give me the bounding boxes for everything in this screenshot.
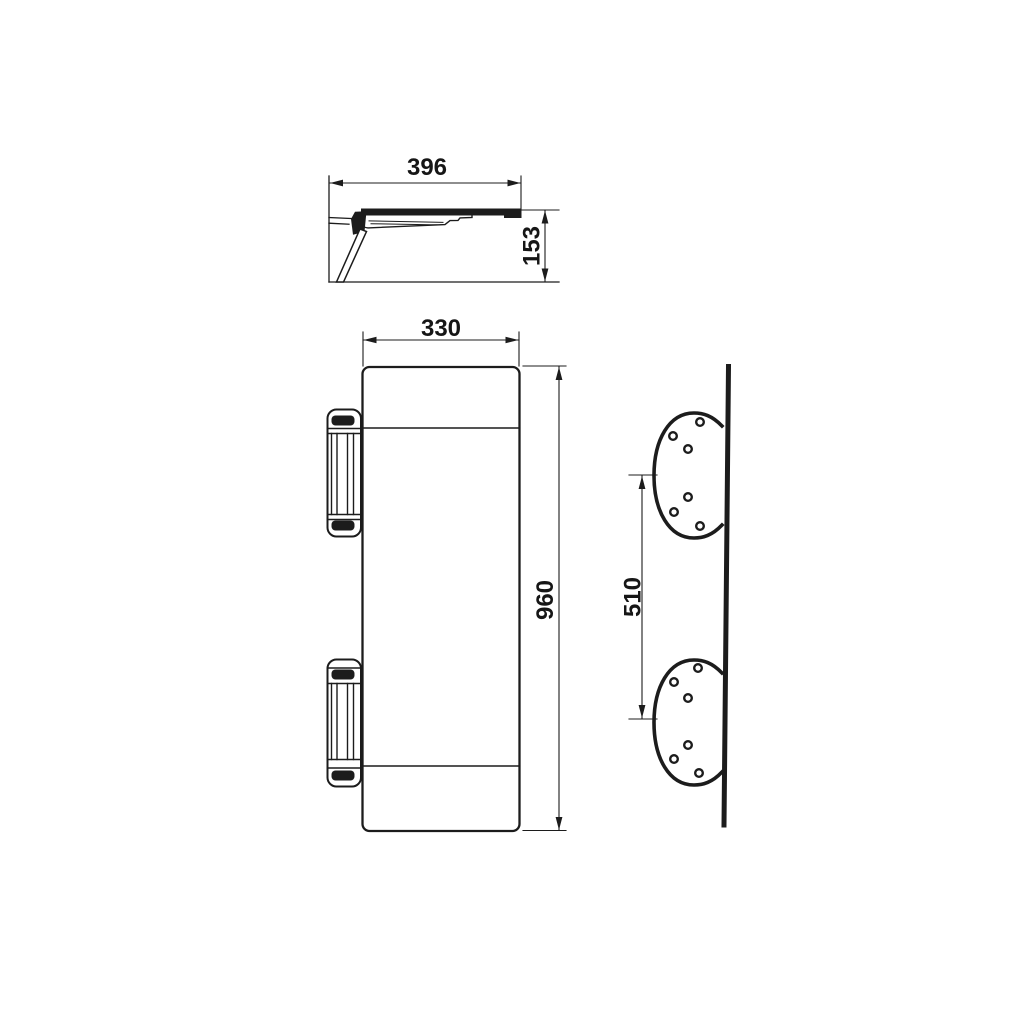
arrowhead-down	[556, 817, 563, 830]
plan-view: 330	[328, 315, 567, 831]
arrowhead-up	[556, 367, 563, 380]
arrowhead-down	[542, 269, 549, 282]
dimension-depth: 396	[330, 154, 521, 210]
wall-flange-line	[329, 218, 353, 219]
arrowhead-up	[542, 211, 549, 224]
mounting-plate-lower	[654, 660, 722, 785]
seat-body-outline	[363, 367, 520, 831]
arrowhead-right	[506, 337, 519, 344]
bracket-pin-top	[332, 416, 355, 426]
arrowhead-down	[639, 705, 646, 718]
hinge-bracket-lower	[328, 660, 362, 787]
hinge-bracket-upper	[328, 410, 362, 537]
wall-profile-line	[724, 367, 729, 826]
mounting-plate-upper	[654, 413, 722, 538]
support-leg	[337, 229, 367, 282]
dimension-height-label: 153	[519, 226, 546, 266]
dimension-length-label: 960	[532, 580, 559, 620]
arrowhead-up	[639, 476, 646, 489]
dimension-plate-spacing-label: 510	[620, 577, 647, 617]
bracket-pin-bottom	[332, 771, 355, 781]
arrowhead-left	[364, 337, 377, 344]
dimension-width: 330	[363, 315, 519, 366]
bracket-pin-bottom	[332, 521, 355, 531]
arrowhead-right	[508, 180, 521, 187]
wall-flange-line	[329, 223, 349, 224]
bracket-pin-top	[332, 670, 355, 680]
dimension-height: 153	[519, 210, 560, 282]
dimension-plate-spacing: 510	[620, 475, 658, 719]
dimension-depth-label: 396	[407, 154, 447, 181]
dimension-width-label: 330	[421, 315, 461, 342]
technical-drawing-page: 396 153 330	[0, 0, 1024, 1024]
mounting-plate-view: 510	[620, 367, 729, 826]
dimension-drawing: 396 153 330	[0, 0, 1024, 1024]
dimension-length: 960	[523, 366, 566, 831]
arrowhead-left	[330, 180, 343, 187]
side-profile-view: 396 153	[329, 154, 559, 282]
